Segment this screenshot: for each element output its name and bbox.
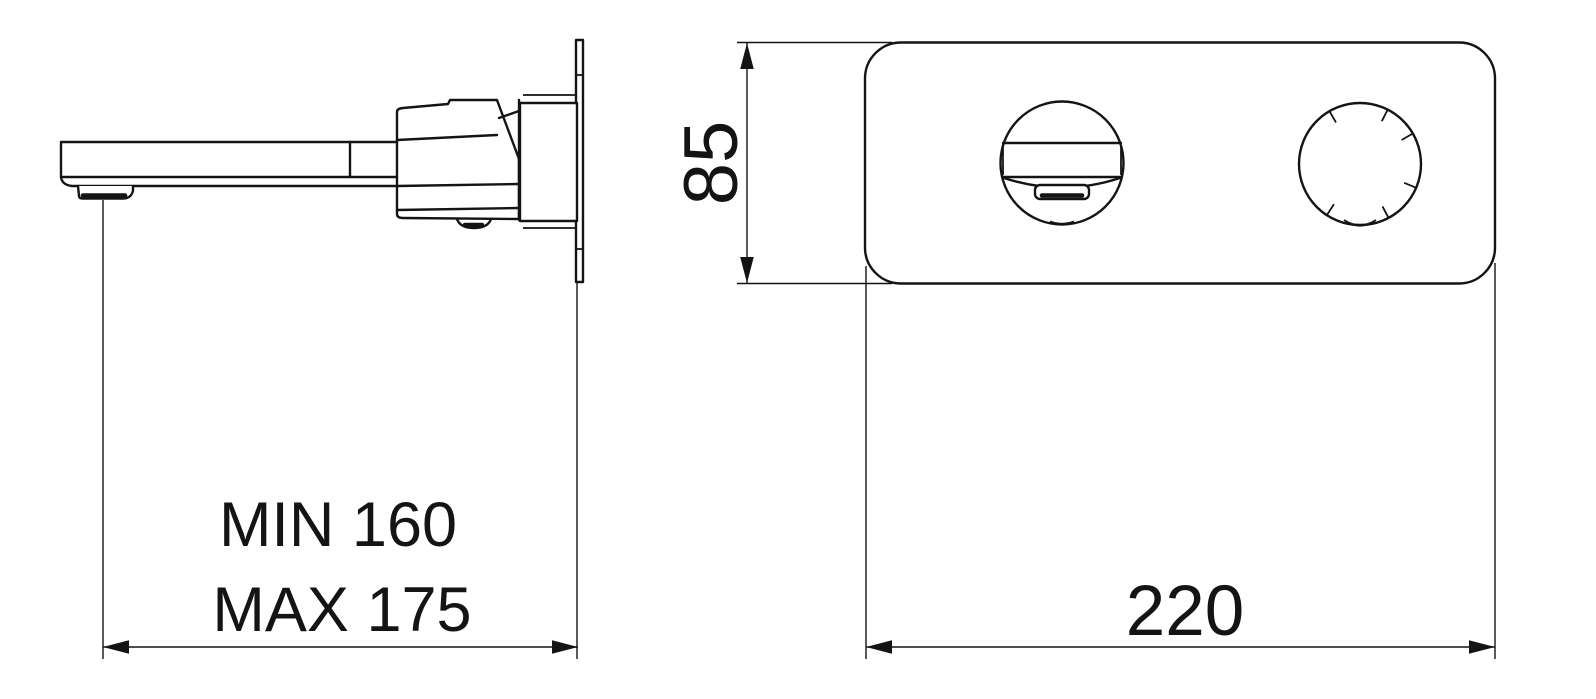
handle-body-side bbox=[397, 100, 519, 228]
arrowhead-right bbox=[1469, 640, 1495, 654]
technical-drawing-canvas: MIN 160 MAX 175 85 220 bbox=[0, 0, 1596, 699]
escutcheon-side bbox=[520, 103, 577, 221]
faucet-dimension-diagram: MIN 160 MAX 175 85 220 bbox=[0, 0, 1596, 699]
arrowhead-left bbox=[866, 640, 892, 654]
arrowhead-up bbox=[740, 43, 754, 69]
spout-underside-line bbox=[61, 177, 397, 186]
label-spout-reach-min: MIN 160 bbox=[219, 490, 457, 560]
arrowhead-left bbox=[103, 640, 129, 654]
label-spout-reach-max: MAX 175 bbox=[212, 575, 471, 645]
faucet-front-view bbox=[865, 43, 1495, 284]
dimension-spout-reach: MIN 160 MAX 175 bbox=[103, 200, 578, 659]
dimension-plate-width: 220 bbox=[866, 263, 1495, 659]
spout-barrel bbox=[61, 142, 397, 177]
dimension-plate-height: 85 bbox=[669, 43, 892, 284]
faucet-side-view bbox=[61, 40, 583, 282]
mounting-plate-front bbox=[865, 43, 1495, 284]
label-plate-width: 220 bbox=[1126, 572, 1244, 651]
arrowhead-right bbox=[552, 640, 578, 654]
spout-side bbox=[61, 142, 397, 199]
label-plate-height: 85 bbox=[669, 121, 754, 206]
arrowhead-down bbox=[740, 257, 754, 283]
